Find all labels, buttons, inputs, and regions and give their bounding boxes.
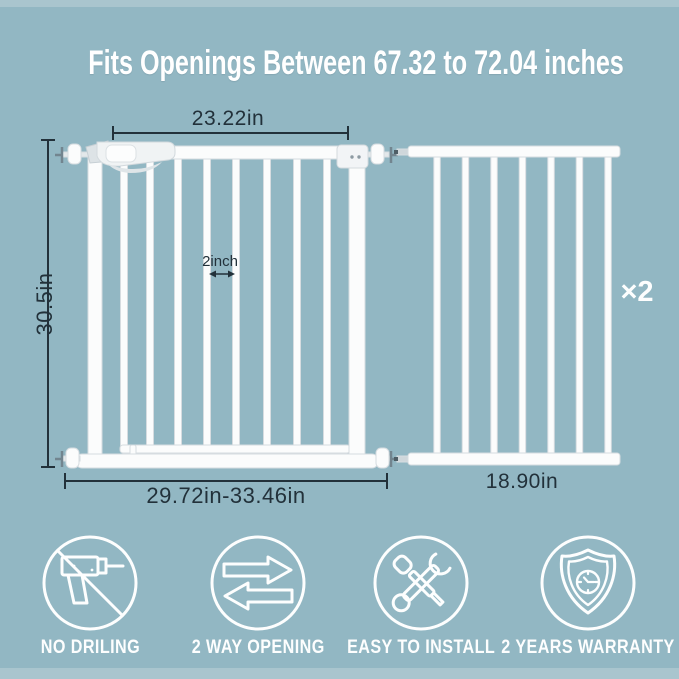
height-label: 30.5in: [32, 272, 56, 336]
product-infographic: Fits Openings Between 67.32 to 72.04 inc…: [0, 0, 679, 679]
no-drilling-icon: [40, 533, 140, 633]
extension-connector-bottom: [397, 456, 409, 462]
gate-hinge-bracket: [337, 145, 368, 168]
bottom-width-label: 29.72in-33.46in: [65, 483, 387, 509]
gate-door-bottom-rail: [120, 445, 350, 453]
feature-two-way-opening: 2 WAY OPENING: [178, 533, 338, 659]
feature-warranty: 2 YEARS WARRANTY: [508, 533, 668, 659]
bar-gap-label: 2inch: [190, 253, 250, 270]
feature-no-drilling: NO DRILING: [10, 533, 170, 659]
gate-door-bars: [121, 150, 331, 447]
feature-label: 2 YEARS WARRANTY: [501, 637, 674, 659]
pressure-screw-top-right: [365, 144, 398, 164]
extension-connector-top: [397, 149, 409, 155]
gate-bottom-rail: [76, 454, 378, 468]
feature-label: 2 WAY OPENING: [191, 637, 324, 659]
extension-width-label: 18.90in: [452, 470, 592, 494]
features-row: NO DRILING 2 WAY OPENING: [0, 533, 679, 673]
pressure-screw-top-left: [55, 144, 90, 164]
gate-left-post: [88, 146, 102, 468]
easy-install-icon: [371, 533, 471, 633]
feature-easy-install: EASY TO INSTALL: [341, 533, 501, 659]
extension-top-rail: [408, 146, 620, 157]
feature-label: NO DRILING: [40, 637, 139, 659]
warranty-shield-icon: [538, 533, 638, 633]
gate-right-post: [349, 146, 365, 468]
top-width-label: 23.22in: [110, 107, 346, 131]
extension-bottom-rail: [408, 453, 620, 465]
pressure-screw-bottom-left: [55, 448, 80, 468]
two-way-opening-icon: [208, 533, 308, 633]
extension-bars: [434, 155, 612, 455]
extension-quantity-label: ×2: [610, 276, 664, 309]
feature-label: EASY TO INSTALL: [347, 637, 495, 659]
extension-panel: [394, 146, 620, 465]
